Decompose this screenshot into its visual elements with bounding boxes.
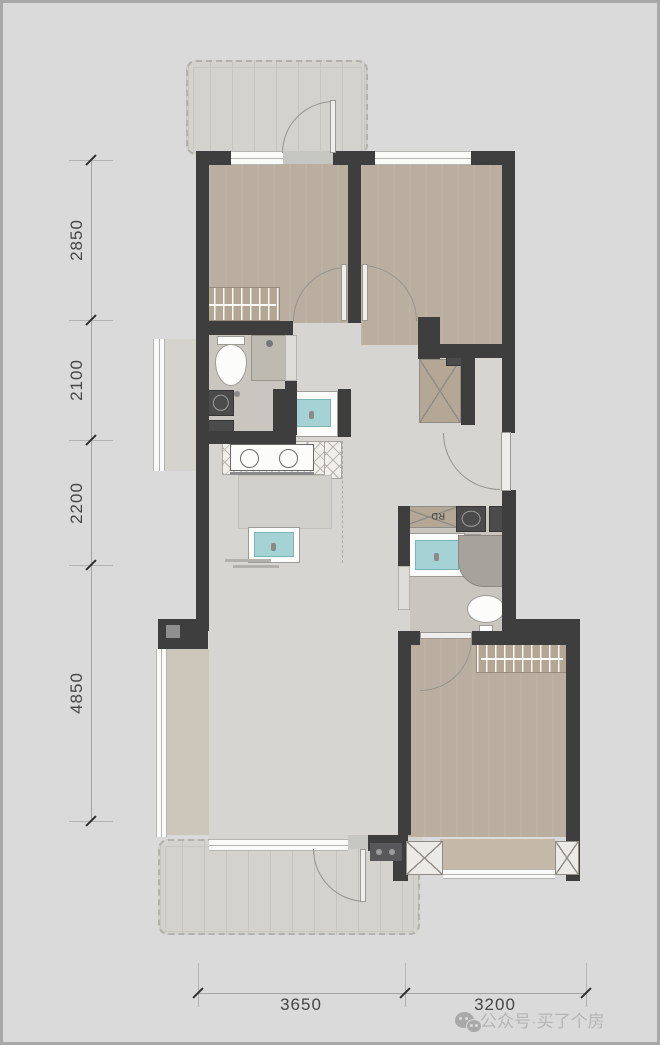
bench-icon: [225, 559, 271, 562]
dimension-extension: [405, 963, 406, 1007]
wall-segment: [273, 389, 286, 437]
column: [406, 841, 443, 875]
dimension-label: 2850: [67, 197, 87, 283]
watermark: 公众号·买了个房: [455, 1007, 605, 1032]
wall-segment: [461, 355, 475, 425]
window: [375, 151, 471, 165]
door-sill: [348, 835, 368, 849]
floor-drain-icon: [234, 391, 240, 397]
door-leaf: [341, 264, 347, 321]
dimension-extension: [586, 963, 587, 1007]
wall-segment: [472, 631, 580, 645]
washing-machine-icon: [456, 506, 486, 532]
shower-head-icon: [266, 340, 273, 347]
wall-segment: [196, 335, 209, 631]
window: [231, 151, 283, 165]
column: [555, 841, 579, 875]
wall-segment: [348, 151, 361, 323]
master-bay-floor: [440, 839, 555, 871]
socket-icon: [376, 849, 382, 855]
dimension-label: 2200: [67, 460, 87, 546]
dimension-extension: [198, 963, 199, 1007]
burner-icon: [240, 449, 259, 468]
kitchen-island: [238, 475, 332, 529]
toilet-icon: [467, 595, 505, 623]
watermark-text: 公众号·买了个房: [480, 1007, 605, 1032]
ac-unit-icon: [166, 625, 180, 638]
wall-segment: [398, 506, 410, 566]
shower-area: [458, 535, 506, 587]
faucet-icon: [434, 553, 439, 561]
wechat-icon: [455, 1012, 474, 1028]
floor-plan-image: RD: [0, 0, 660, 1045]
socket-panel: [370, 843, 402, 861]
pocket-door: [398, 566, 410, 610]
dimension-label: 3650: [261, 995, 341, 1015]
window: [443, 869, 555, 879]
wall-segment: [398, 631, 420, 645]
window: [153, 339, 165, 471]
wall-segment: [440, 344, 515, 358]
door-leaf: [330, 100, 336, 153]
wardrobe-icon: [204, 287, 280, 321]
door-leaf: [420, 632, 472, 639]
washing-machine-icon: [208, 390, 234, 416]
living-bay-ledge: [167, 649, 209, 835]
socket-icon: [389, 849, 395, 855]
wall-segment: [502, 151, 515, 358]
dimension-label: 4850: [67, 650, 87, 736]
pocket-door: [285, 335, 297, 381]
burner-icon: [279, 449, 298, 468]
dimension-line-left: [91, 160, 92, 821]
faucet-icon: [309, 411, 314, 419]
kitchen-open-boundary: [342, 441, 343, 563]
left-bay-ledge: [165, 339, 196, 471]
wall-segment: [285, 381, 297, 435]
entry-closet-icon: [419, 359, 461, 423]
riser-duct-label: RD: [431, 511, 445, 521]
door-leaf: [501, 432, 511, 491]
wall-segment: [338, 389, 351, 437]
window: [156, 649, 167, 837]
bench-icon: [233, 565, 279, 568]
faucet-icon: [271, 543, 276, 551]
kitchen-counter-side: [324, 441, 342, 479]
wall-segment: [398, 645, 411, 835]
wall-segment: [502, 358, 515, 433]
wall-segment: [566, 619, 580, 835]
wall-segment: [196, 431, 296, 444]
dimension-line-bottom: [198, 993, 587, 994]
wall-segment: [502, 490, 516, 633]
wall-segment: [418, 317, 440, 359]
door-leaf: [362, 264, 368, 321]
balcony-top-glazing: [193, 67, 362, 153]
wall-segment: [196, 321, 293, 335]
dimension-label: 2100: [67, 337, 87, 423]
door-leaf: [360, 849, 366, 902]
wardrobe-icon: [476, 643, 568, 673]
living-room-floor: [209, 563, 423, 841]
wall-segment: [196, 151, 209, 335]
